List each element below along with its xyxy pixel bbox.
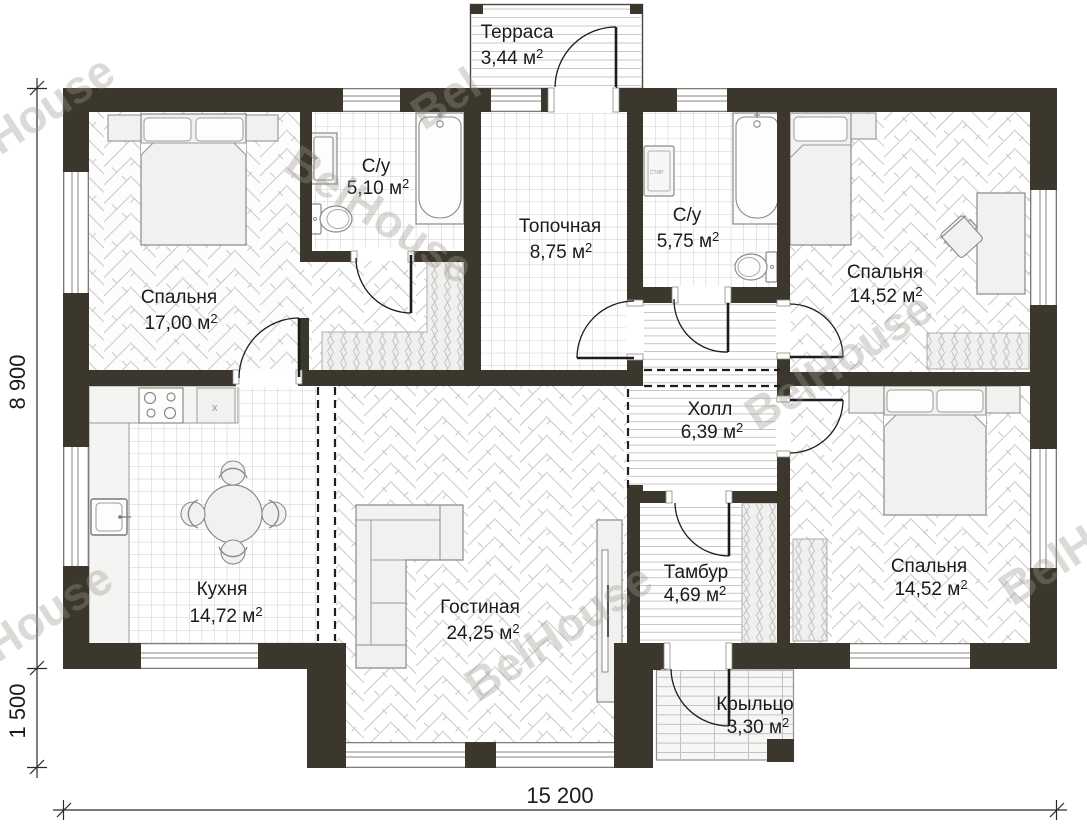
svg-text:Тамбур: Тамбур	[664, 562, 729, 583]
svg-text:1 500: 1 500	[5, 683, 30, 738]
svg-text:3,30 м2: 3,30 м2	[727, 715, 790, 738]
svg-text:Спальня: Спальня	[891, 556, 967, 577]
svg-text:4,69 м2: 4,69 м2	[664, 583, 727, 606]
svg-text:Терраса: Терраса	[481, 22, 554, 43]
svg-text:6,39 м2: 6,39 м2	[681, 420, 744, 443]
svg-text:3,44 м2: 3,44 м2	[481, 46, 544, 69]
svg-text:15 200: 15 200	[526, 783, 593, 808]
svg-text:С/у: С/у	[673, 205, 702, 226]
svg-text:Гостиная: Гостиная	[440, 597, 520, 618]
svg-text:14,72 м2: 14,72 м2	[189, 604, 262, 627]
svg-text:Топочная: Топочная	[519, 216, 601, 237]
svg-text:Спальня: Спальня	[847, 262, 923, 283]
svg-text:Спальня: Спальня	[141, 287, 217, 308]
svg-text:Крыльцо: Крыльцо	[716, 694, 794, 715]
svg-text:СТИР: СТИР	[650, 170, 664, 176]
svg-text:14,52 м2: 14,52 м2	[894, 577, 967, 600]
svg-text:5,75 м2: 5,75 м2	[657, 229, 720, 252]
svg-text:8,75 м2: 8,75 м2	[530, 240, 593, 263]
svg-text:Кухня: Кухня	[197, 579, 248, 600]
svg-text:Холл: Холл	[688, 399, 733, 420]
svg-text:17,00 м2: 17,00 м2	[144, 311, 217, 334]
svg-text:8 900: 8 900	[5, 354, 30, 409]
svg-text:x: x	[212, 402, 218, 414]
